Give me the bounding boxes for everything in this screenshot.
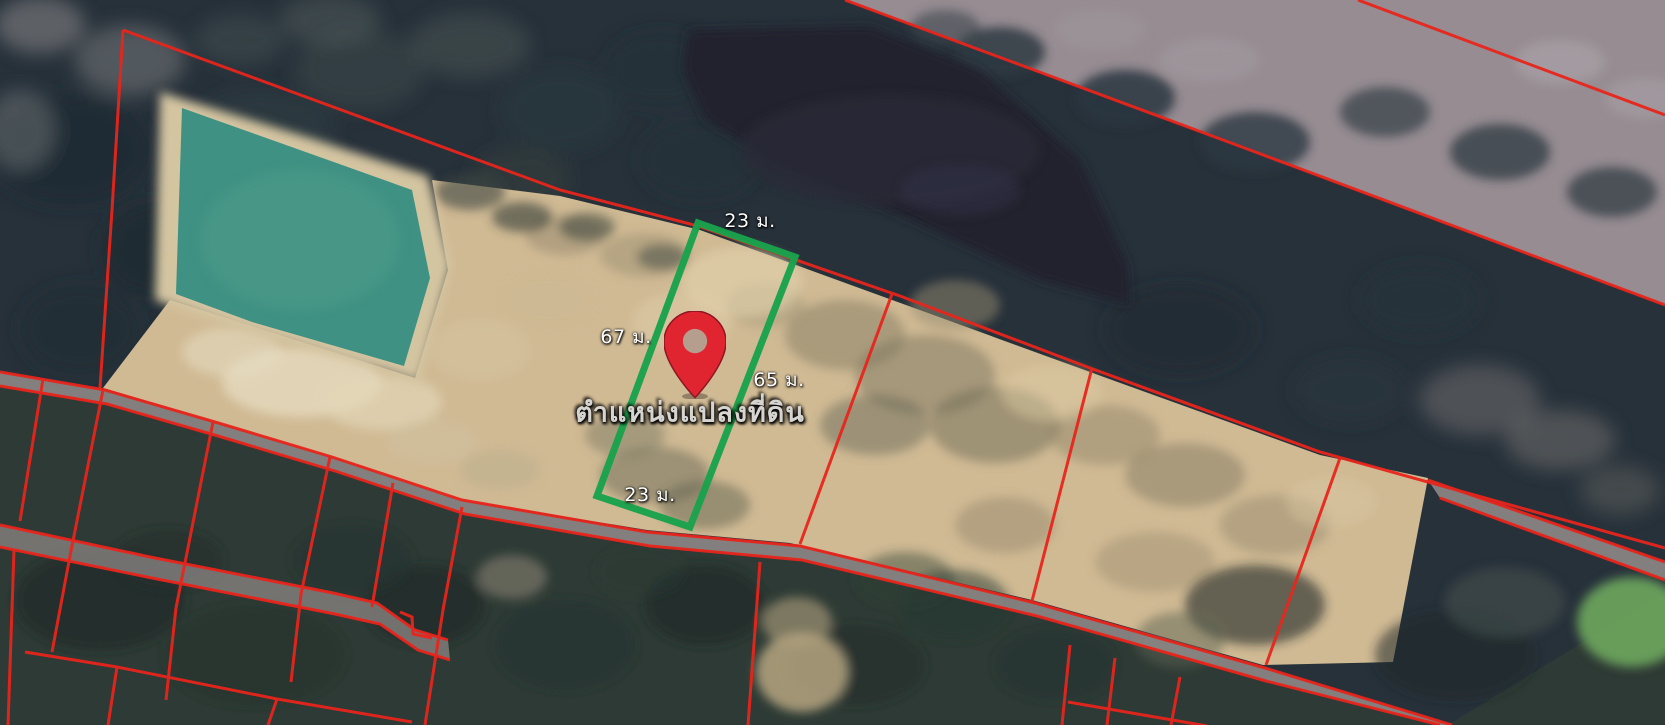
label-left-length: 67 ม. <box>600 322 651 352</box>
satellite-map[interactable]: 23 ม. 67 ม. 65 ม. 23 ม. ตำแหน่งแปลงที่ดิ… <box>0 0 1665 725</box>
label-bottom-width: 23 ม. <box>624 480 675 510</box>
location-pin-icon[interactable] <box>664 311 726 399</box>
label-top-width: 23 ม. <box>724 206 775 236</box>
highlighted-plot-layer <box>0 0 1665 725</box>
